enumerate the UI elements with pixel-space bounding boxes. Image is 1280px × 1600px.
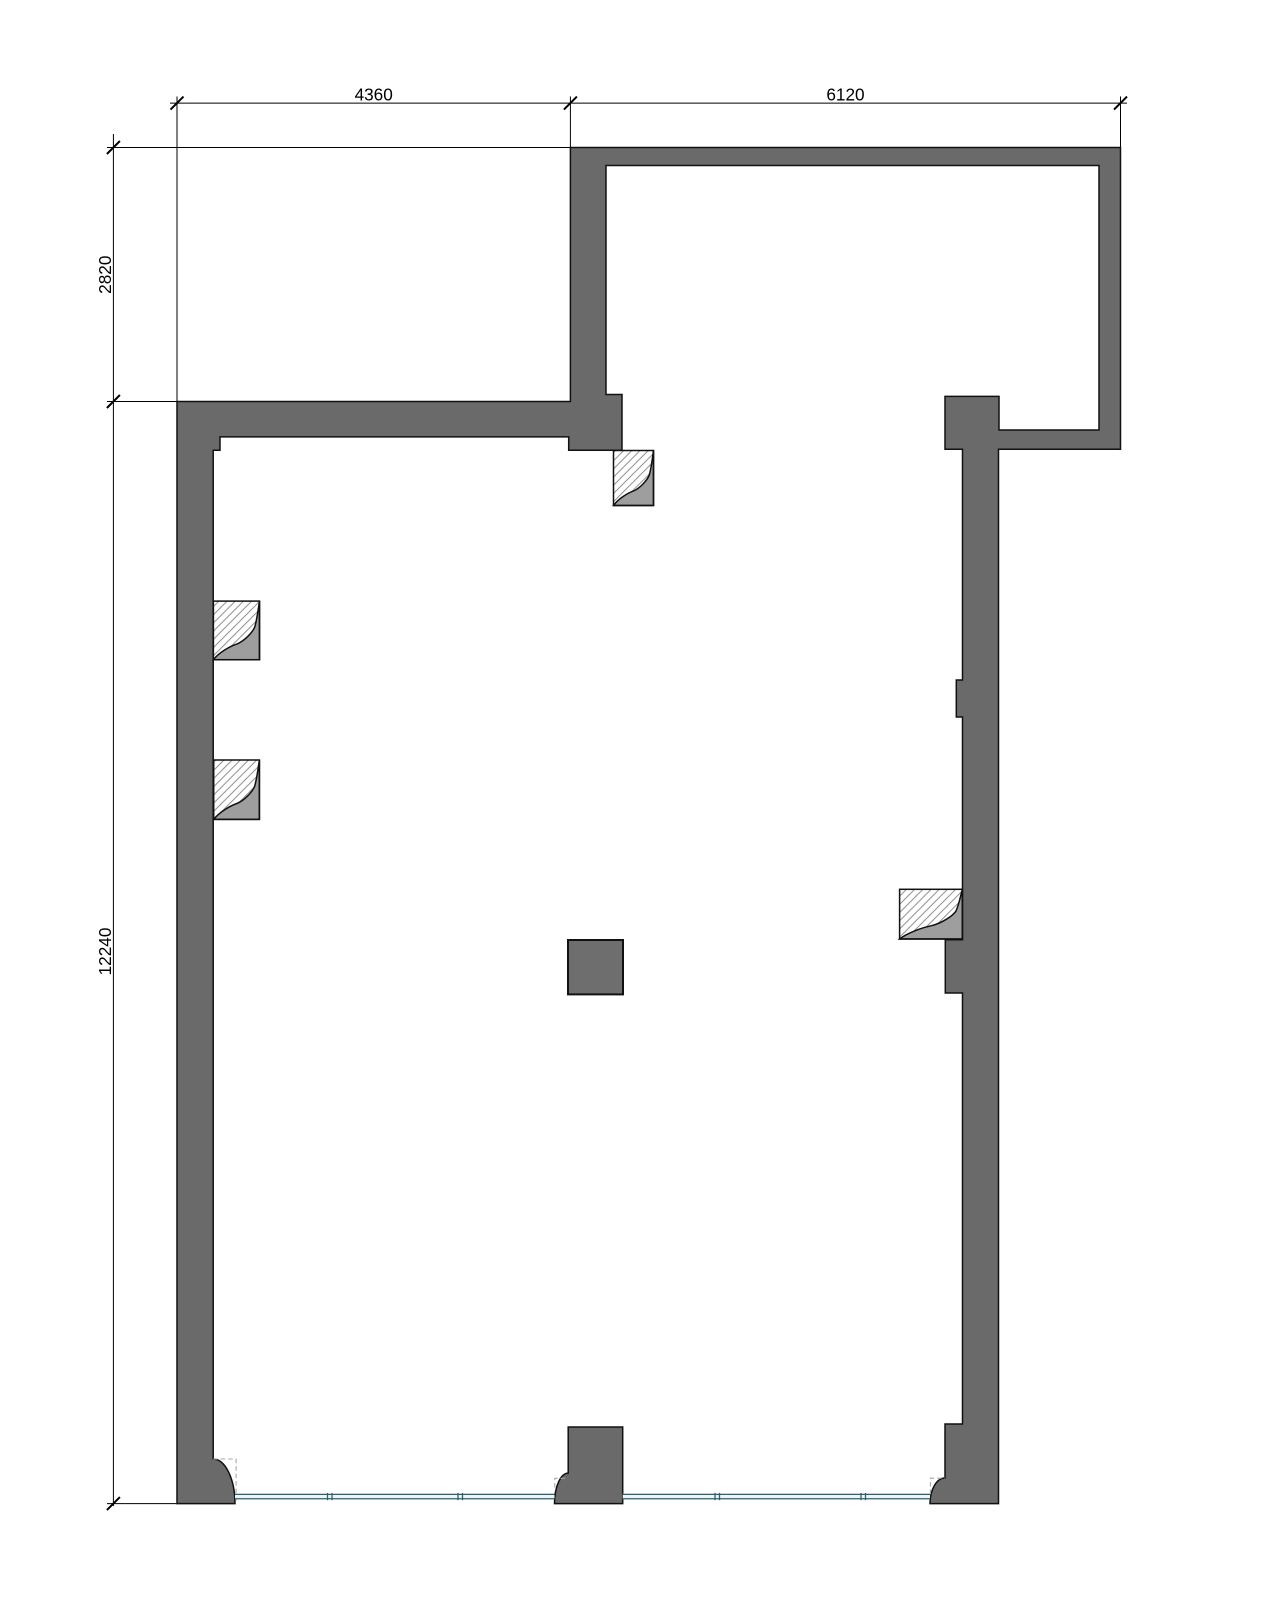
svg-text:2820: 2820 bbox=[95, 256, 115, 294]
svg-text:6120: 6120 bbox=[826, 85, 864, 105]
svg-text:4360: 4360 bbox=[355, 85, 393, 105]
svg-text:12240: 12240 bbox=[95, 928, 115, 976]
